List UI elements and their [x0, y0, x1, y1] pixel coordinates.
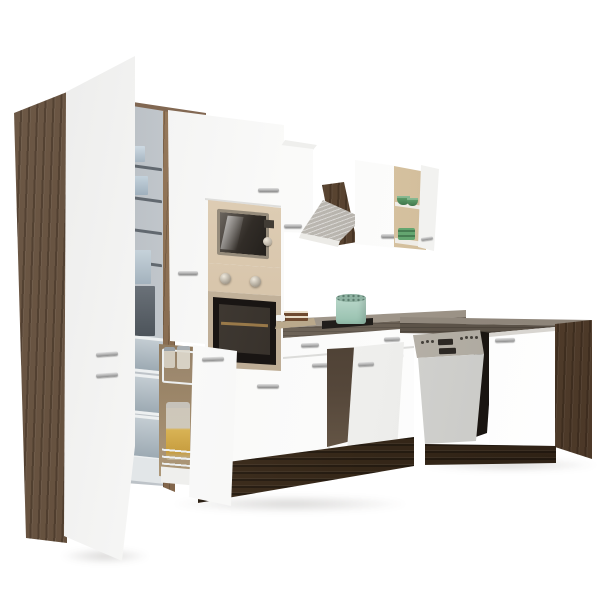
dishwasher-display	[438, 339, 453, 346]
door-handle	[495, 338, 515, 343]
layered-cake	[284, 311, 308, 321]
dishwasher-button	[421, 341, 424, 344]
pantry-base	[161, 467, 194, 486]
oven-knob	[220, 273, 231, 284]
oven-knob	[250, 276, 261, 287]
floor-shadow	[420, 458, 600, 472]
glass-jar	[164, 347, 175, 368]
dishwasher-button	[426, 340, 429, 343]
pantry-pullout-handle	[202, 357, 224, 362]
drawer-handle	[301, 343, 319, 348]
dishwasher-handle-recess	[439, 348, 456, 355]
glass-jar	[177, 346, 190, 369]
column-drawer-handle	[257, 384, 279, 388]
kitchen-product-photo	[0, 0, 600, 600]
green-bowl-stack	[398, 228, 415, 240]
dishwasher-button	[475, 336, 478, 339]
dishwasher-button	[470, 336, 473, 339]
pot-lid	[336, 294, 366, 302]
column-door-handle	[258, 188, 279, 192]
dishwasher-button	[460, 337, 463, 340]
microwave-display	[264, 220, 274, 229]
pantry-wire-basket	[162, 445, 194, 468]
napkin	[276, 315, 285, 321]
freezer-base	[128, 456, 164, 484]
sink-door-handle	[358, 362, 374, 367]
dishwasher-button	[431, 340, 434, 343]
dishwasher-button	[465, 336, 468, 339]
pantry-door-handle	[178, 271, 198, 275]
wall-cabinet-handle	[284, 224, 302, 228]
drawer-handle	[384, 337, 400, 342]
microwave-dial	[263, 237, 272, 246]
